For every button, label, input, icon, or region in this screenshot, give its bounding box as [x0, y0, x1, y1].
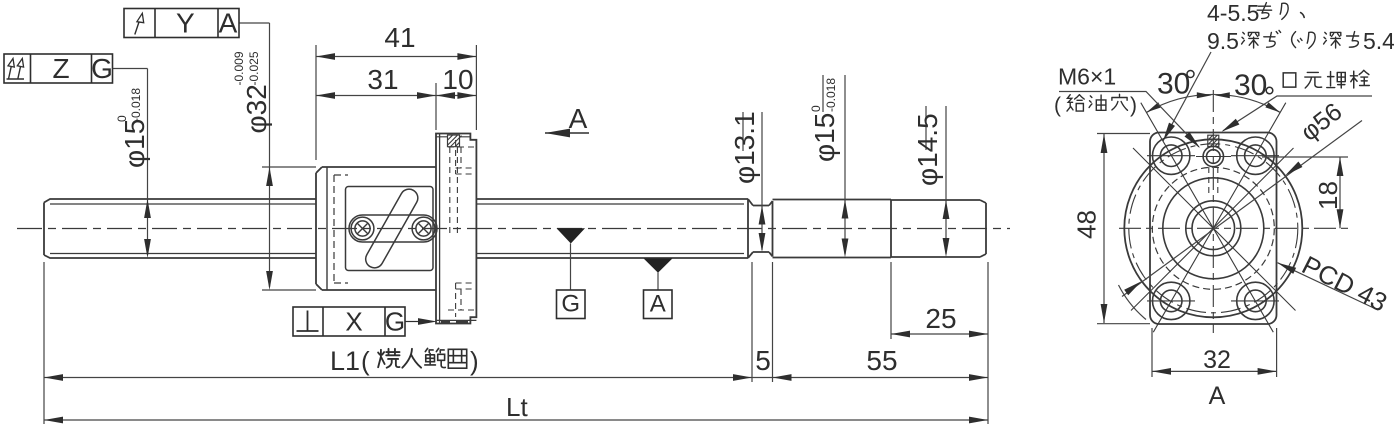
svg-text:A: A — [569, 103, 588, 134]
svg-text:G: G — [91, 53, 113, 84]
svg-text:-0.009: -0.009 — [232, 51, 246, 85]
svg-text:18: 18 — [1313, 181, 1343, 210]
svg-text:φ15: φ15 — [809, 113, 840, 162]
svg-text:Lt: Lt — [506, 392, 528, 422]
svg-text:0: 0 — [115, 115, 129, 122]
svg-text:(: ( — [361, 346, 370, 376]
svg-text:M6×1: M6×1 — [1058, 64, 1116, 90]
svg-text:30: 30 — [1157, 68, 1190, 101]
svg-text:φ14.5: φ14.5 — [912, 113, 943, 186]
svg-text:G: G — [385, 307, 405, 337]
svg-text:-0.018: -0.018 — [824, 78, 838, 112]
svg-text:31: 31 — [367, 64, 398, 95]
svg-text:25: 25 — [925, 303, 956, 334]
svg-text:30: 30 — [1234, 69, 1267, 102]
svg-text:5: 5 — [755, 345, 771, 376]
svg-text:0: 0 — [809, 105, 823, 112]
svg-text:41: 41 — [384, 22, 415, 53]
svg-text:4-5.5: 4-5.5 — [1207, 0, 1259, 26]
svg-text:32: 32 — [1203, 346, 1231, 374]
svg-text:55: 55 — [866, 345, 897, 376]
svg-text:φ15: φ15 — [119, 119, 150, 168]
svg-text:): ) — [1130, 94, 1137, 117]
svg-text:A: A — [1209, 382, 1226, 410]
svg-text:φ32: φ32 — [241, 84, 272, 133]
svg-text:-0.025: -0.025 — [247, 51, 261, 85]
svg-text:PCD 43: PCD 43 — [1297, 250, 1392, 318]
svg-text:(: ( — [1054, 94, 1061, 117]
svg-text:φ56: φ56 — [1295, 98, 1347, 147]
svg-text:A: A — [219, 8, 238, 39]
svg-text:10: 10 — [442, 64, 473, 95]
svg-text:G: G — [561, 291, 580, 318]
svg-text:X: X — [345, 307, 362, 337]
svg-text:A: A — [650, 291, 666, 318]
svg-text:5.4: 5.4 — [1363, 28, 1394, 54]
svg-text:Y: Y — [176, 8, 195, 39]
svg-text:): ) — [470, 346, 479, 376]
svg-text:Z: Z — [52, 53, 69, 84]
svg-text:48: 48 — [1072, 210, 1102, 239]
svg-text:φ13.1: φ13.1 — [729, 111, 760, 184]
svg-text:9.5: 9.5 — [1207, 28, 1239, 54]
svg-text:-0.018: -0.018 — [129, 88, 143, 122]
svg-text:L1: L1 — [330, 346, 360, 376]
